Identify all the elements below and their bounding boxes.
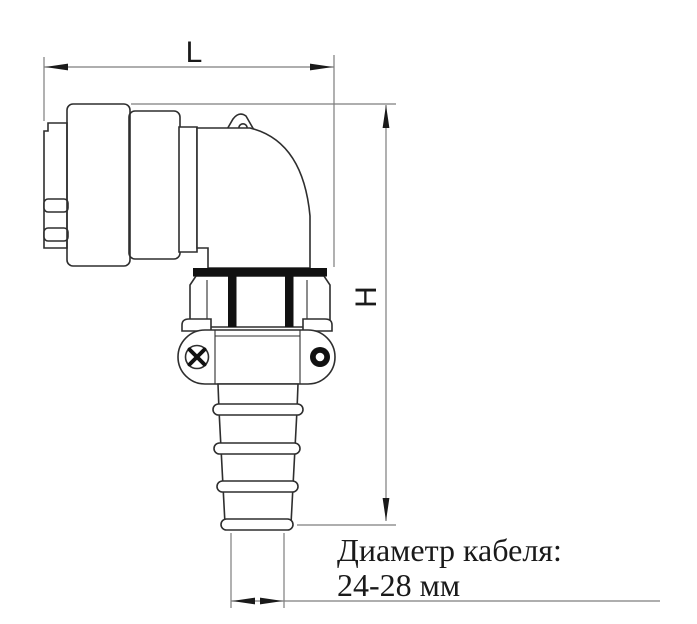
contact-pin — [44, 228, 68, 241]
elbow-body — [197, 128, 310, 268]
arrowhead-right-icon — [310, 64, 333, 71]
arrowhead-left-icon — [232, 598, 255, 605]
connector-technical-drawing: L H — [0, 0, 697, 624]
gland-slot — [285, 276, 294, 327]
elbow — [197, 114, 310, 268]
coupling-nut-knurl-front — [67, 104, 130, 266]
barb-ring — [213, 404, 303, 415]
clamp-hole-icon — [310, 347, 330, 367]
length-dimension-label: L — [186, 36, 203, 69]
arrowhead-down-icon — [383, 498, 390, 521]
connector-collar — [179, 127, 197, 252]
clamp-screw-icon — [186, 346, 209, 369]
arrowhead-right-icon — [260, 598, 283, 605]
gland-slot — [228, 276, 237, 327]
barb-ring — [217, 481, 298, 492]
connector-head — [44, 104, 197, 266]
cable-clamp — [178, 319, 335, 384]
cable-note-line2: 24-28 мм — [337, 567, 460, 603]
gland-nut-top-band — [193, 268, 327, 277]
barb-ring — [221, 519, 293, 530]
gland-nut — [190, 268, 330, 327]
height-dimension-label: H — [350, 286, 383, 308]
arrowhead-up-icon — [383, 105, 390, 128]
contact-pin — [44, 199, 68, 212]
coupling-nut-knurl-rear — [129, 111, 180, 259]
hose-barb — [213, 384, 303, 530]
dimension-cable-diameter: Диаметр кабеля: 24-28 мм — [231, 532, 660, 608]
arrowhead-left-icon — [45, 64, 68, 71]
cable-note-line1: Диаметр кабеля: — [337, 532, 562, 568]
barb-ring — [214, 443, 300, 454]
drawing-canvas: L H — [0, 0, 697, 624]
